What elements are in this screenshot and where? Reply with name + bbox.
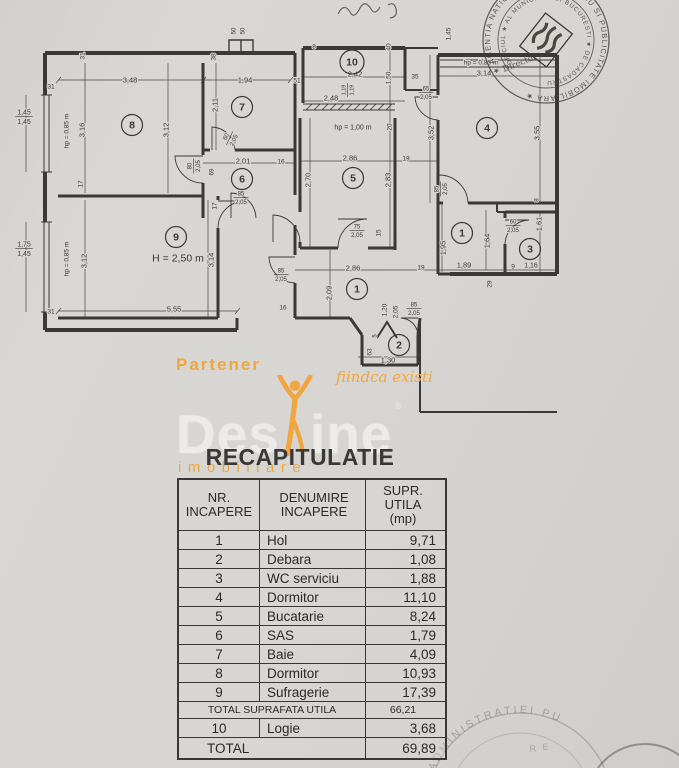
- table-row: 1Hol9,71: [178, 531, 446, 550]
- svg-text:3,12: 3,12: [162, 123, 171, 138]
- room-number: 7: [232, 97, 253, 118]
- table-row: 9Sufragerie17,39: [178, 683, 446, 702]
- svg-text:1,89: 1,89: [457, 261, 472, 270]
- room-number: 8: [122, 115, 143, 136]
- svg-text:9: 9: [173, 232, 179, 244]
- header-area: SUPR. UTILA (mp): [366, 479, 447, 531]
- svg-text:1,95: 1,95: [439, 241, 448, 256]
- table-row: 7Baie4,09: [178, 645, 446, 664]
- dimension-label: 1,64: [483, 234, 492, 249]
- dimension-label: hp = 0,85 m: [64, 114, 71, 149]
- svg-text:3,52: 3,52: [427, 126, 436, 141]
- svg-text:65: 65: [423, 87, 430, 93]
- table-row: 6SAS1,79: [178, 626, 446, 645]
- svg-text:2,05: 2,05: [196, 160, 202, 172]
- table-cell: 1,88: [366, 569, 447, 588]
- scanned-floorplan-page: 3,481,94513,163,12hp = 0,85 m313117382,1…: [0, 0, 679, 768]
- svg-text:2,05: 2,05: [408, 311, 420, 317]
- dimension-label: 2,86: [343, 154, 358, 163]
- svg-text:80: 80: [188, 162, 194, 169]
- svg-text:9: 9: [511, 264, 515, 271]
- svg-text:1: 1: [459, 228, 465, 240]
- svg-text:19: 19: [417, 265, 425, 272]
- svg-text:17: 17: [78, 180, 85, 188]
- svg-text:3,16: 3,16: [78, 123, 87, 138]
- dimension-label: 19: [417, 265, 425, 272]
- svg-text:2,86: 2,86: [343, 154, 358, 163]
- dimension-label: 31: [47, 84, 55, 91]
- svg-text:1,19: 1,19: [342, 85, 348, 96]
- svg-text:1,45: 1,45: [17, 251, 31, 258]
- svg-text:60: 60: [510, 220, 517, 226]
- table-cell: 2: [178, 550, 260, 569]
- table-cell: Bucatarie: [260, 607, 366, 626]
- dimension-label: 1,20: [382, 303, 389, 316]
- svg-text:1,20: 1,20: [382, 303, 389, 316]
- table-cell: 9: [178, 683, 260, 702]
- svg-text:5: 5: [373, 334, 379, 338]
- svg-text:19: 19: [402, 156, 410, 163]
- dimension-label: 35: [411, 74, 419, 81]
- svg-text:17: 17: [212, 202, 219, 210]
- room-number: 6: [232, 169, 253, 190]
- room-number: 2: [389, 335, 410, 356]
- svg-text:1,75: 1,75: [17, 242, 31, 249]
- dimension-label: 3,16: [78, 123, 87, 138]
- table-cell: 4,09: [366, 645, 447, 664]
- dimension-label: 3,14: [207, 253, 216, 268]
- svg-text:2,05: 2,05: [420, 95, 432, 101]
- svg-text:85: 85: [278, 269, 285, 275]
- dimension-label: 2,01: [236, 157, 251, 166]
- svg-text:2: 2: [396, 340, 402, 352]
- dimension-label: 1,94: [238, 76, 253, 85]
- svg-text:40: 40: [386, 43, 393, 51]
- svg-text:69: 69: [210, 168, 216, 175]
- svg-text:2,05: 2,05: [393, 305, 400, 318]
- dimension-label: 3,14: [477, 69, 492, 78]
- recapitulation-table: NR. INCAPERE DENUMIRE INCAPERE SUPR. UTI…: [177, 478, 447, 760]
- dimension-label: 1,95: [439, 241, 448, 256]
- dimension-label: 2,09: [325, 286, 334, 301]
- svg-text:5,55: 5,55: [167, 305, 182, 314]
- svg-text:2,11: 2,11: [211, 98, 220, 112]
- dimension-label: hp = 1,00 m: [334, 125, 371, 132]
- table-cell: Baie: [260, 645, 366, 664]
- dimension-label: 2,11: [211, 98, 220, 112]
- dimension-label: 1,191,19: [342, 83, 356, 97]
- dimension-label: 802,05: [188, 159, 203, 174]
- svg-text:3,12: 3,12: [80, 254, 89, 269]
- table-cell: 8: [178, 664, 260, 683]
- table-cell: 8,24: [366, 607, 447, 626]
- svg-text:1,50: 1,50: [386, 71, 393, 84]
- table-cell: 3: [178, 569, 260, 588]
- svg-text:1,64: 1,64: [483, 234, 492, 249]
- svg-text:31: 31: [47, 84, 55, 91]
- dimension-label: 17: [212, 202, 219, 210]
- svg-text:3,48: 3,48: [123, 76, 138, 85]
- table-cell: Dormitor: [260, 664, 366, 683]
- table-cell: 1,79: [366, 626, 447, 645]
- table-cell: SAS: [260, 626, 366, 645]
- table-cell: 11,10: [366, 588, 447, 607]
- dimension-label: 9: [511, 264, 515, 271]
- svg-text:3,14: 3,14: [207, 253, 216, 268]
- dimension-label: 40: [386, 43, 393, 51]
- total-value: 69,89: [366, 738, 447, 760]
- dimension-label: 8: [534, 198, 541, 202]
- svg-text:2,48: 2,48: [324, 94, 339, 103]
- corner-stamp-arc: [587, 744, 679, 768]
- room-table-body: 1Hol9,712Debara1,083WC serviciu1,884Dorm…: [178, 531, 446, 702]
- table-row: 2Debara1,08: [178, 550, 446, 569]
- svg-text:20: 20: [387, 123, 394, 131]
- subtotal-value: 66,21: [366, 702, 447, 719]
- svg-text:2,05: 2,05: [351, 233, 363, 239]
- svg-text:hp = 0,85 m: hp = 0,85 m: [64, 114, 71, 149]
- dimension-label: 16: [277, 159, 285, 166]
- dimension-label: 3,12: [80, 254, 89, 269]
- dimension-label: 5,55: [167, 305, 182, 314]
- svg-text:2,83: 2,83: [384, 173, 393, 188]
- svg-text:50: 50: [241, 27, 247, 34]
- svg-text:2,70: 2,70: [304, 173, 313, 188]
- table-cell: 1: [178, 531, 260, 550]
- svg-text:50: 50: [232, 27, 238, 34]
- table-cell: 6: [178, 626, 260, 645]
- dimension-label: 19: [402, 156, 410, 163]
- svg-text:1,45: 1,45: [17, 110, 31, 117]
- dimension-label: 16: [279, 305, 287, 312]
- dimension-label: 752,05: [350, 225, 365, 240]
- table-cell: 10,93: [366, 664, 447, 683]
- svg-text:51: 51: [293, 78, 301, 85]
- dimension-label: 50: [241, 27, 247, 34]
- svg-text:1: 1: [354, 284, 360, 296]
- registered-mark: ®: [394, 401, 401, 411]
- room-number: 3: [520, 239, 541, 260]
- svg-text:2,09: 2,09: [325, 286, 334, 301]
- dimension-label: 8: [312, 44, 316, 51]
- dimension-label: 852,05: [274, 269, 289, 284]
- svg-text:16: 16: [277, 159, 285, 166]
- svg-text:1,19: 1,19: [350, 85, 356, 96]
- svg-text:35: 35: [411, 74, 419, 81]
- total-label: TOTAL: [178, 738, 366, 760]
- subtotal-row: TOTAL SUPRAFATA UTILA 66,21: [178, 702, 446, 719]
- svg-text:H = 2,50 m: H = 2,50 m: [152, 253, 204, 265]
- svg-text:31: 31: [47, 309, 55, 316]
- room-number: 5: [343, 168, 364, 189]
- svg-text:1,61: 1,61: [535, 217, 544, 232]
- dimension-label: 29: [487, 280, 494, 288]
- dimension-label: 15: [376, 229, 383, 237]
- svg-text:1,45: 1,45: [446, 27, 453, 40]
- svg-text:hp = 0,85 m: hp = 0,85 m: [64, 242, 71, 277]
- svg-text:3,55: 3,55: [533, 126, 542, 141]
- dimension-label: 1,451,45: [15, 110, 32, 127]
- svg-text:2,01: 2,01: [236, 157, 251, 166]
- svg-text:hp = 1,00 m: hp = 1,00 m: [334, 125, 371, 132]
- header-name: DENUMIRE INCAPERE: [260, 479, 366, 531]
- table-row: 4Dormitor11,10: [178, 588, 446, 607]
- table-cell: 17,39: [366, 683, 447, 702]
- svg-text:85: 85: [238, 192, 245, 198]
- dimension-label: 38: [211, 53, 218, 61]
- logie-row: 10 Logie 3,68: [178, 719, 446, 738]
- dimension-label: hp = 0,85 m: [64, 242, 71, 277]
- svg-text:1,94: 1,94: [238, 76, 253, 85]
- table-cell: Sufragerie: [260, 683, 366, 702]
- table-cell: 1,08: [366, 550, 447, 569]
- handwriting-mark: [338, 4, 396, 18]
- svg-text:38: 38: [211, 53, 218, 61]
- dimension-label: 17: [78, 180, 85, 188]
- room-number: 1: [347, 279, 368, 300]
- dimension-label: 1,751,45: [15, 242, 32, 259]
- room-number: 1: [452, 223, 473, 244]
- svg-text:16: 16: [279, 305, 287, 312]
- dimension-label: 31: [80, 52, 87, 60]
- room-number: 4: [477, 118, 498, 139]
- table-row: 8Dormitor10,93: [178, 664, 446, 683]
- dimension-label: 1,45: [446, 27, 453, 40]
- dimension-label: 69: [210, 168, 216, 175]
- dimension-label: 1,16: [524, 263, 538, 270]
- table-header-row: NR. INCAPERE DENUMIRE INCAPERE SUPR. UTI…: [178, 479, 446, 531]
- svg-text:6: 6: [239, 174, 245, 186]
- svg-text:3,14: 3,14: [477, 69, 492, 78]
- dimension-label: 50: [232, 27, 238, 34]
- dimension-label: H = 2,50 m: [152, 253, 204, 265]
- dimension-label: 602,05: [221, 129, 241, 149]
- room-number: 9: [166, 227, 187, 248]
- dimension-label: 20: [387, 123, 394, 131]
- table-row: 3WC serviciu1,88: [178, 569, 446, 588]
- svg-text:3: 3: [527, 244, 533, 256]
- table-cell: 5: [178, 607, 260, 626]
- svg-text:8: 8: [129, 120, 135, 132]
- svg-text:1,16: 1,16: [524, 263, 538, 270]
- svg-text:2,05: 2,05: [275, 277, 287, 283]
- svg-text:2,86: 2,86: [346, 264, 361, 273]
- dimension-label: 852,05: [407, 303, 422, 318]
- faint-stamp-fragment: R E: [529, 741, 551, 754]
- svg-text:8: 8: [312, 44, 316, 51]
- svg-text:15: 15: [376, 229, 383, 237]
- table-row: 5Bucatarie8,24: [178, 607, 446, 626]
- svg-text:60: 60: [223, 132, 232, 141]
- dimension-label: 652,05: [419, 87, 434, 102]
- dimension-label: 1,89: [457, 261, 472, 270]
- table-cell: Hol: [260, 531, 366, 550]
- dimension-label: 2,83: [384, 173, 393, 188]
- dimension-label: 2,05: [393, 305, 400, 318]
- svg-text:4: 4: [484, 123, 490, 135]
- header-nr: NR. INCAPERE: [178, 479, 260, 531]
- dimension-label: 3,52: [427, 126, 436, 141]
- logie-name: Logie: [260, 719, 366, 738]
- subtotal-label: TOTAL SUPRAFATA UTILA: [178, 702, 366, 719]
- logo-tagline-text: fiindca existi: [336, 368, 433, 386]
- recapitulation-title: RECAPITULATIE: [170, 444, 430, 471]
- table-cell: WC serviciu: [260, 569, 366, 588]
- svg-text:29: 29: [487, 280, 494, 288]
- svg-text:75: 75: [354, 225, 361, 231]
- dimension-label: 51: [293, 78, 301, 85]
- dimension-label: 5: [373, 334, 379, 338]
- svg-text:2,05: 2,05: [507, 228, 519, 234]
- table-cell: Debara: [260, 550, 366, 569]
- dimension-label: 2,48: [324, 94, 339, 103]
- svg-text:5: 5: [350, 173, 356, 185]
- dimension-label: 1,50: [386, 71, 393, 84]
- svg-text:2,05: 2,05: [443, 183, 449, 195]
- table-cell: Dormitor: [260, 588, 366, 607]
- svg-text:85: 85: [435, 185, 441, 192]
- svg-text:2,05: 2,05: [235, 200, 247, 206]
- dimension-label: 3,12: [162, 123, 171, 138]
- dimension-label: 3,55: [533, 126, 542, 141]
- svg-text:31: 31: [80, 52, 87, 60]
- table-cell: 7: [178, 645, 260, 664]
- svg-text:85: 85: [411, 303, 418, 309]
- logie-nr: 10: [178, 719, 260, 738]
- table-cell: 4: [178, 588, 260, 607]
- logie-area: 3,68: [366, 719, 447, 738]
- total-row: TOTAL 69,89: [178, 738, 446, 760]
- dimension-label: 3,48: [123, 76, 138, 85]
- dimension-label: 31: [47, 309, 55, 316]
- dimension-label: 2,70: [304, 173, 313, 188]
- table-cell: 9,71: [366, 531, 447, 550]
- svg-text:8: 8: [534, 198, 541, 202]
- svg-text:7: 7: [239, 102, 245, 114]
- dimension-label: 1,61: [535, 217, 544, 232]
- dimension-label: 2,86: [346, 264, 361, 273]
- svg-text:10: 10: [346, 57, 358, 69]
- svg-text:1,45: 1,45: [17, 119, 31, 126]
